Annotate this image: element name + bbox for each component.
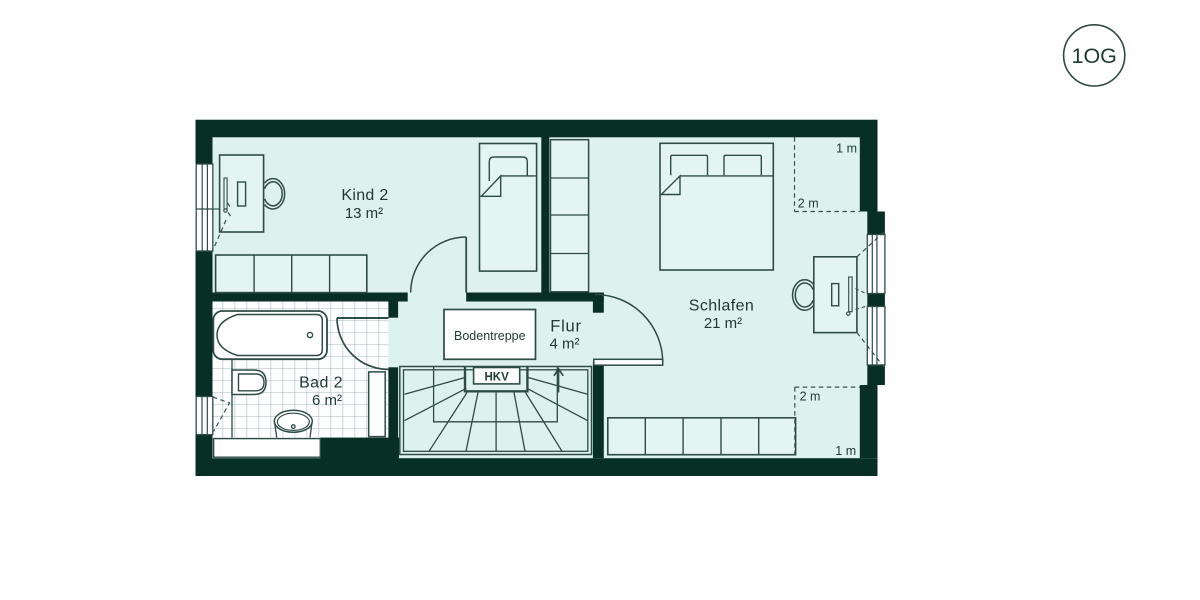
svg-text:Bad 2: Bad 2 [299, 375, 343, 392]
svg-text:6 m²: 6 m² [312, 392, 342, 409]
svg-text:4 m²: 4 m² [550, 336, 580, 353]
svg-text:1OG: 1OG [1071, 44, 1116, 68]
svg-text:Bodentreppe: Bodentreppe [454, 329, 526, 343]
svg-text:HKV: HKV [484, 371, 509, 383]
svg-text:2 m: 2 m [800, 390, 821, 404]
svg-text:Schlafen: Schlafen [689, 298, 754, 315]
svg-text:Kind 2: Kind 2 [341, 187, 388, 204]
svg-text:2 m: 2 m [798, 197, 819, 211]
svg-text:21 m²: 21 m² [704, 315, 742, 332]
svg-text:Flur: Flur [550, 318, 582, 336]
svg-text:13 m²: 13 m² [345, 205, 383, 222]
svg-text:1 m: 1 m [835, 444, 856, 458]
svg-text:1 m: 1 m [836, 141, 857, 155]
